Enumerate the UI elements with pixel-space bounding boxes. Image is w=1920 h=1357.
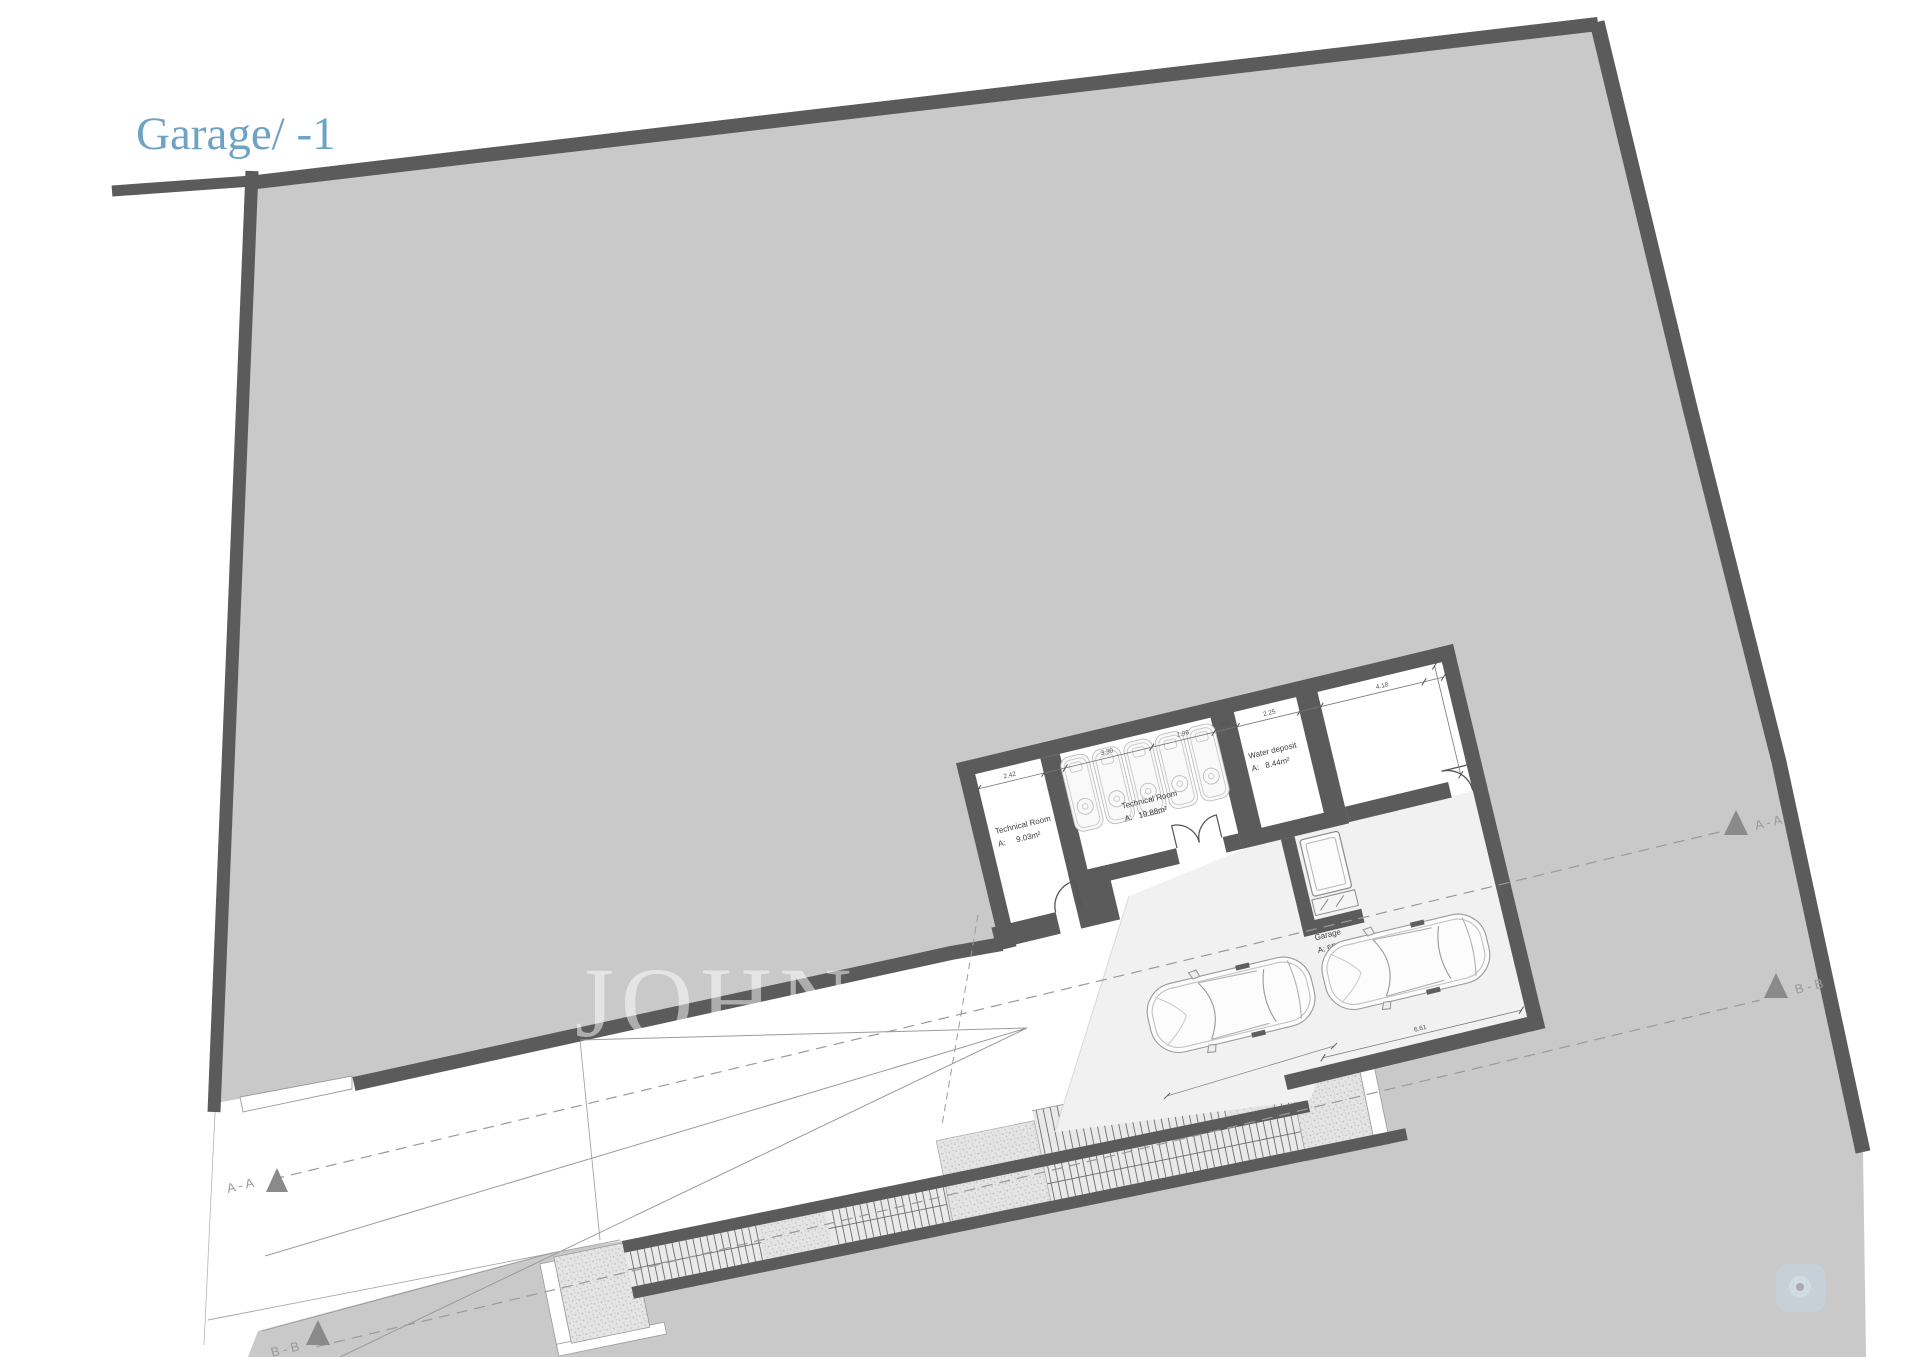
svg-text:Garage/ -1: Garage/ -1 bbox=[136, 108, 336, 160]
svg-text:JOHN: JOHN bbox=[575, 947, 859, 1058]
